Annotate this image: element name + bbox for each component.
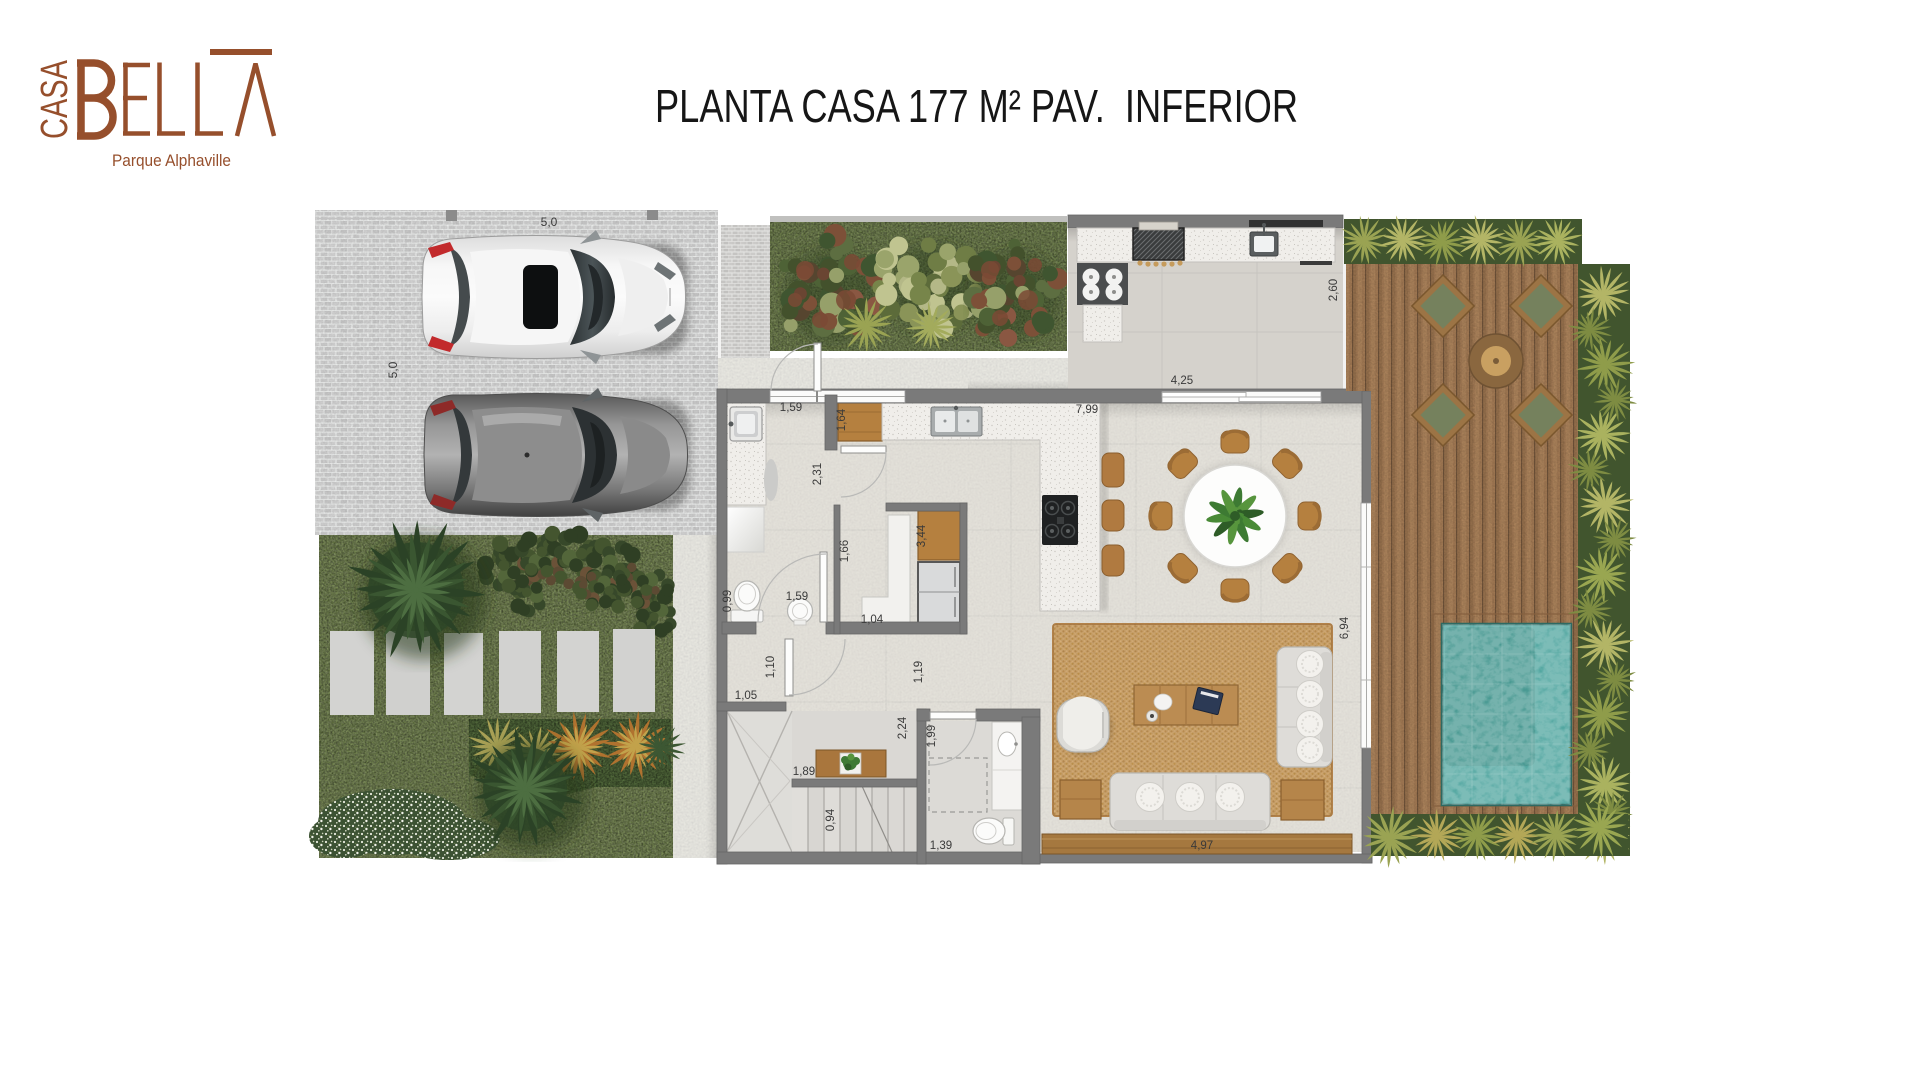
svg-text:7,99: 7,99	[1076, 404, 1098, 416]
svg-text:1,19: 1,19	[913, 661, 925, 683]
svg-text:1,39: 1,39	[930, 840, 952, 852]
svg-text:1,59: 1,59	[780, 402, 802, 414]
svg-text:1,99: 1,99	[926, 725, 938, 747]
svg-text:1,05: 1,05	[735, 690, 757, 702]
svg-text:6,94: 6,94	[1339, 616, 1351, 639]
svg-text:PLANTA CASA 177 M² PAV. INFER: PLANTA CASA 177 M² PAV. INFERIOR	[655, 80, 1298, 132]
svg-text:1,59: 1,59	[786, 591, 808, 603]
svg-text:4,25: 4,25	[1171, 375, 1193, 387]
svg-text:0,99: 0,99	[722, 590, 734, 612]
svg-text:1,89: 1,89	[793, 766, 815, 778]
svg-text:2,31: 2,31	[812, 463, 824, 485]
svg-text:5,0: 5,0	[386, 361, 400, 378]
svg-text:1,66: 1,66	[839, 540, 851, 562]
svg-text:3,44: 3,44	[916, 524, 928, 547]
svg-text:2,60: 2,60	[1328, 279, 1340, 301]
svg-text:Parque Alphaville: Parque Alphaville	[112, 152, 231, 170]
svg-text:0,94: 0,94	[825, 808, 837, 831]
svg-text:4,97: 4,97	[1191, 840, 1213, 852]
svg-text:CASA: CASA	[34, 60, 76, 139]
svg-text:1,10: 1,10	[765, 656, 777, 678]
svg-text:2,24: 2,24	[897, 716, 909, 739]
svg-text:1,64: 1,64	[836, 408, 848, 431]
svg-text:5,0: 5,0	[541, 215, 558, 229]
svg-text:1,04: 1,04	[861, 614, 884, 626]
